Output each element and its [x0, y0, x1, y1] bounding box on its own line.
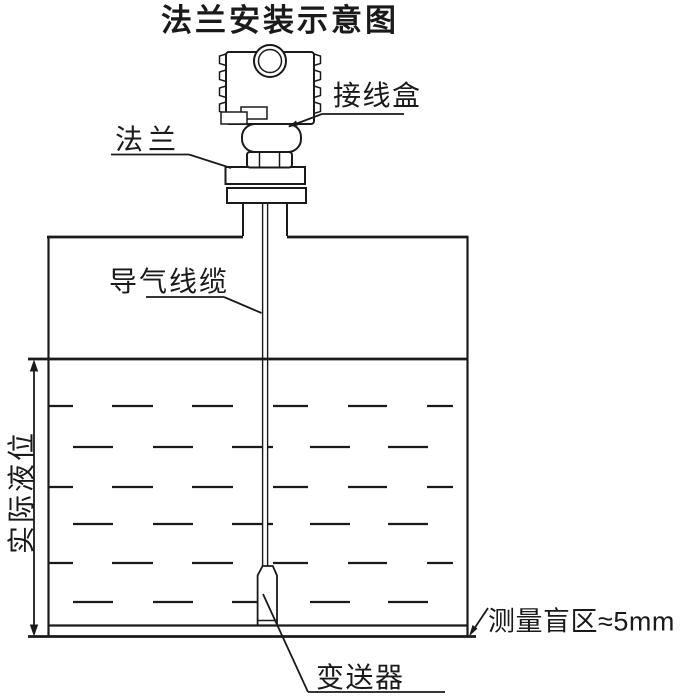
vent-cable-label: 导气线缆 — [109, 266, 229, 297]
flange-plate — [226, 167, 306, 184]
gasket-plate — [227, 188, 306, 203]
process-connection — [242, 124, 301, 152]
leader-line — [224, 297, 262, 313]
arrowhead-up — [30, 360, 38, 372]
arrowhead-down — [30, 625, 38, 637]
tank — [28, 237, 476, 637]
housing-cap-inner — [259, 50, 282, 73]
flange-label: 法兰 — [115, 124, 181, 155]
flange-callout: 法兰 — [111, 124, 231, 168]
vent-cable-line — [263, 196, 268, 568]
blind-zone-callout: 测量盲区≈5mm — [469, 607, 675, 637]
hex-nut — [247, 152, 292, 168]
junction-box-label: 接线盒 — [333, 80, 422, 111]
transmitter-callout: 变送器 — [263, 594, 445, 693]
diagram-title: 法兰安装示意图 — [161, 3, 399, 38]
flange-installation-diagram: 法兰安装示意图 — [0, 0, 700, 700]
leader-line — [189, 155, 231, 169]
vent-cable-callout: 导气线缆 — [109, 266, 262, 313]
liquid-dashes — [48, 406, 453, 602]
blind-zone-label: 测量盲区≈5mm — [488, 607, 675, 637]
leader-line — [263, 594, 308, 692]
diagram-canvas: 法兰安装示意图 — [0, 0, 700, 700]
terminal-bracket — [221, 112, 247, 124]
actual-level-label: 实际液位 — [6, 430, 37, 554]
transmitter-label: 变送器 — [316, 662, 405, 693]
transmitter-head — [220, 45, 321, 168]
